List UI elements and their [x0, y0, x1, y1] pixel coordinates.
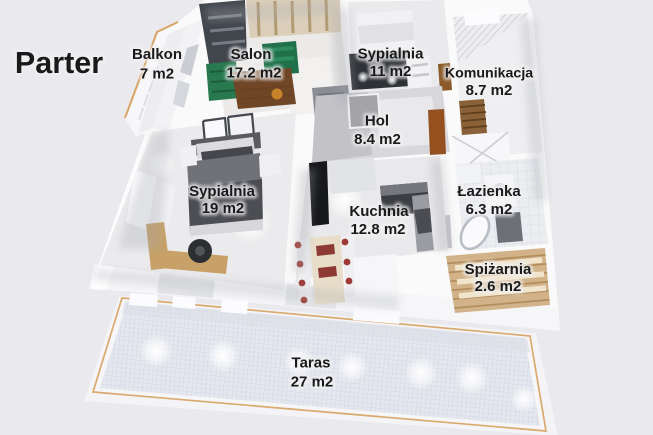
svg-text:Parter: Parter: [15, 46, 103, 80]
svg-text:8.7 m2: 8.7 m2: [466, 82, 513, 99]
svg-text:Hol: Hol: [365, 113, 389, 130]
svg-text:Balkon: Balkon: [132, 46, 182, 63]
svg-text:8.4 m2: 8.4 m2: [354, 131, 401, 148]
svg-text:Taras: Taras: [292, 355, 331, 372]
svg-text:6.3 m2: 6.3 m2: [466, 201, 513, 218]
svg-text:11 m2: 11 m2: [370, 63, 412, 80]
svg-text:2.6 m2: 2.6 m2: [475, 278, 522, 295]
svg-text:Łazienka: Łazienka: [457, 183, 521, 200]
svg-text:Komunikacja: Komunikacja: [445, 66, 533, 82]
svg-text:19 m2: 19 m2: [202, 200, 245, 217]
svg-text:Salon: Salon: [231, 46, 272, 63]
svg-text:27 m2: 27 m2: [291, 374, 334, 391]
svg-text:Kuchnia: Kuchnia: [349, 203, 409, 220]
svg-text:Sypialnia: Sypialnia: [358, 46, 425, 63]
svg-text:17.2 m2: 17.2 m2: [226, 65, 281, 82]
svg-text:7 m2: 7 m2: [140, 66, 174, 83]
svg-text:Spiżarnia: Spiżarnia: [465, 261, 532, 278]
svg-text:12.8 m2: 12.8 m2: [350, 221, 405, 238]
svg-text:Sypialnia: Sypialnia: [189, 183, 256, 200]
